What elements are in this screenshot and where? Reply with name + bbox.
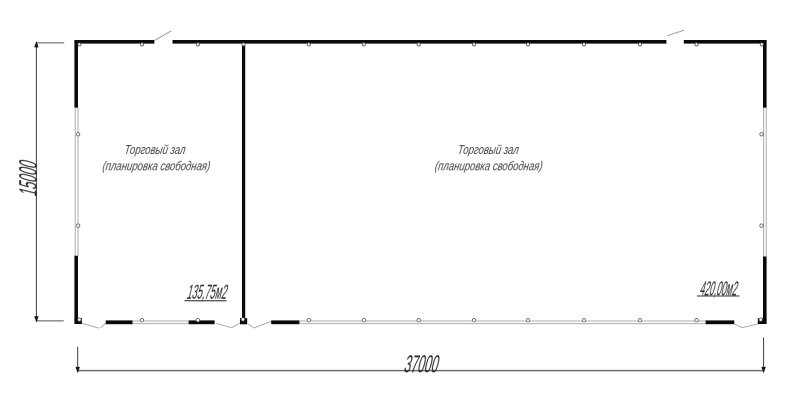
svg-text:Торговый зал: Торговый зал [123,144,187,157]
svg-text:(планировка свободная): (планировка свободная) [434,160,544,173]
svg-text:Торговый зал: Торговый зал [457,144,521,157]
svg-text:420,00м2: 420,00м2 [698,278,741,301]
svg-text:(планировка свободная): (планировка свободная) [101,160,211,173]
svg-text:15000: 15000 [16,157,43,199]
svg-text:37000: 37000 [402,351,443,378]
